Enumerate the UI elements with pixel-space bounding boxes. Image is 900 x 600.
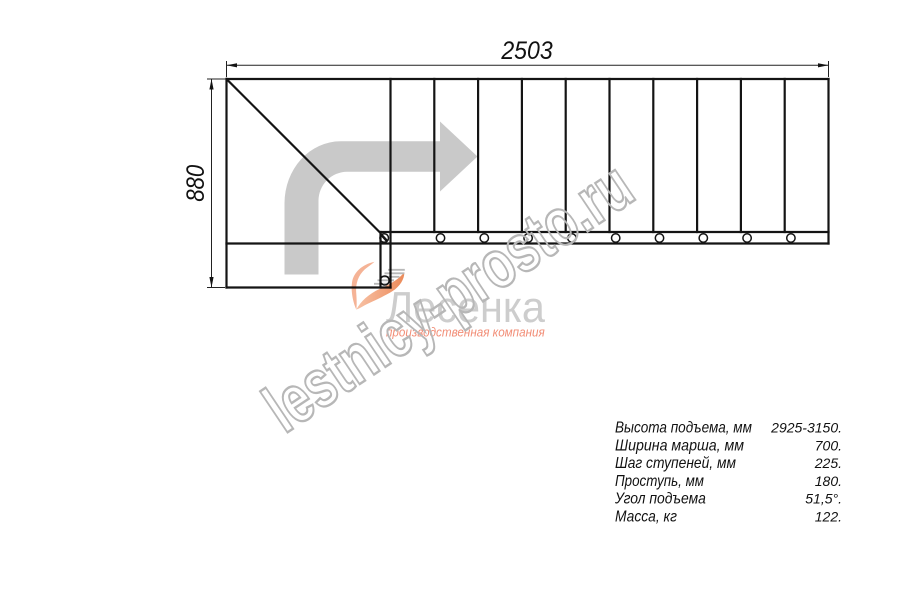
svg-text:2503: 2503: [500, 37, 553, 65]
svg-text:180.: 180.: [815, 473, 842, 489]
svg-text:880: 880: [183, 165, 210, 202]
svg-text:Проступь, мм: Проступь, мм: [615, 473, 704, 490]
svg-text:Ширина марша, мм: Ширина марша, мм: [615, 437, 745, 455]
svg-text:51,5°.: 51,5°.: [805, 491, 842, 507]
svg-text:Масса, кг: Масса, кг: [615, 507, 677, 525]
svg-text:Шаг ступеней, мм: Шаг ступеней, мм: [615, 454, 736, 472]
svg-text:700.: 700.: [815, 437, 842, 453]
svg-text:225.: 225.: [814, 455, 842, 471]
svg-text:Высота подъема, мм: Высота подъема, мм: [615, 420, 752, 437]
svg-text:Угол подъема: Угол подъема: [614, 490, 706, 508]
svg-text:2925-3150.: 2925-3150.: [770, 420, 842, 436]
svg-text:122.: 122.: [815, 508, 842, 524]
